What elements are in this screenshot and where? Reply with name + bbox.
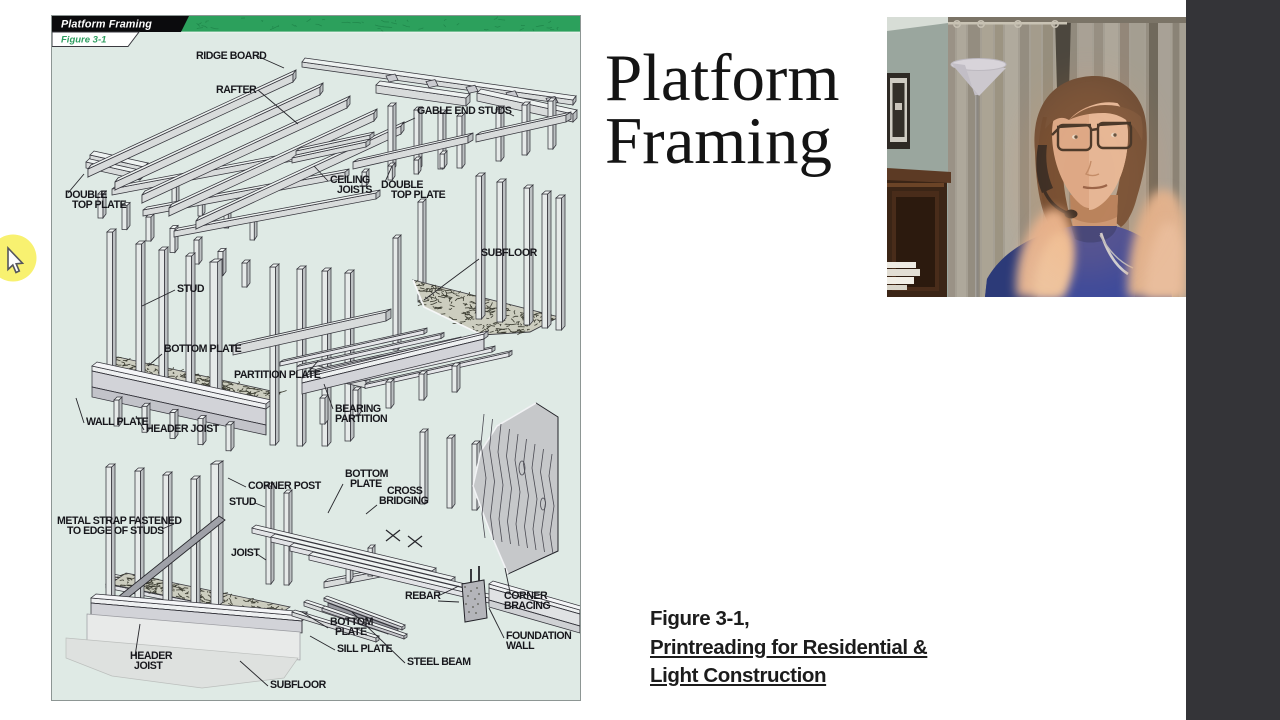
svg-text:PLATE: PLATE: [350, 478, 382, 490]
svg-text:TO EDGE OF STUDS: TO EDGE OF STUDS: [67, 525, 164, 537]
svg-text:STEEL BEAM: STEEL BEAM: [407, 656, 471, 668]
svg-text:RAFTER: RAFTER: [216, 84, 257, 96]
svg-text:Platform Framing: Platform Framing: [61, 19, 152, 31]
svg-text:TOP PLATE: TOP PLATE: [391, 189, 446, 201]
svg-text:Figure 3-1: Figure 3-1: [61, 35, 106, 46]
svg-text:BRIDGING: BRIDGING: [379, 495, 429, 507]
svg-text:STUD: STUD: [229, 496, 257, 508]
svg-text:SUBFLOOR: SUBFLOOR: [270, 679, 327, 691]
svg-text:CORNER POST: CORNER POST: [248, 480, 322, 492]
svg-text:PLATE: PLATE: [335, 626, 367, 638]
svg-text:PARTITION: PARTITION: [335, 413, 387, 425]
svg-text:STUD: STUD: [177, 283, 205, 295]
svg-text:PARTITION PLATE: PARTITION PLATE: [234, 369, 321, 381]
svg-text:JOIST: JOIST: [231, 547, 260, 559]
svg-text:HEADER JOIST: HEADER JOIST: [146, 423, 220, 435]
svg-text:JOISTS: JOISTS: [337, 184, 372, 196]
svg-text:GABLE END STUDS: GABLE END STUDS: [417, 105, 512, 117]
svg-text:SUBFLOOR: SUBFLOOR: [481, 247, 538, 259]
svg-text:JOIST: JOIST: [134, 660, 163, 672]
svg-text:WALL: WALL: [506, 640, 535, 652]
svg-text:BRACING: BRACING: [504, 600, 550, 612]
svg-text:REBAR: REBAR: [405, 590, 441, 602]
svg-text:RIDGE BOARD: RIDGE BOARD: [196, 50, 267, 62]
svg-text:SILL PLATE: SILL PLATE: [337, 643, 393, 655]
svg-text:BOTTOM PLATE: BOTTOM PLATE: [164, 343, 242, 355]
svg-text:TOP PLATE: TOP PLATE: [72, 199, 127, 211]
